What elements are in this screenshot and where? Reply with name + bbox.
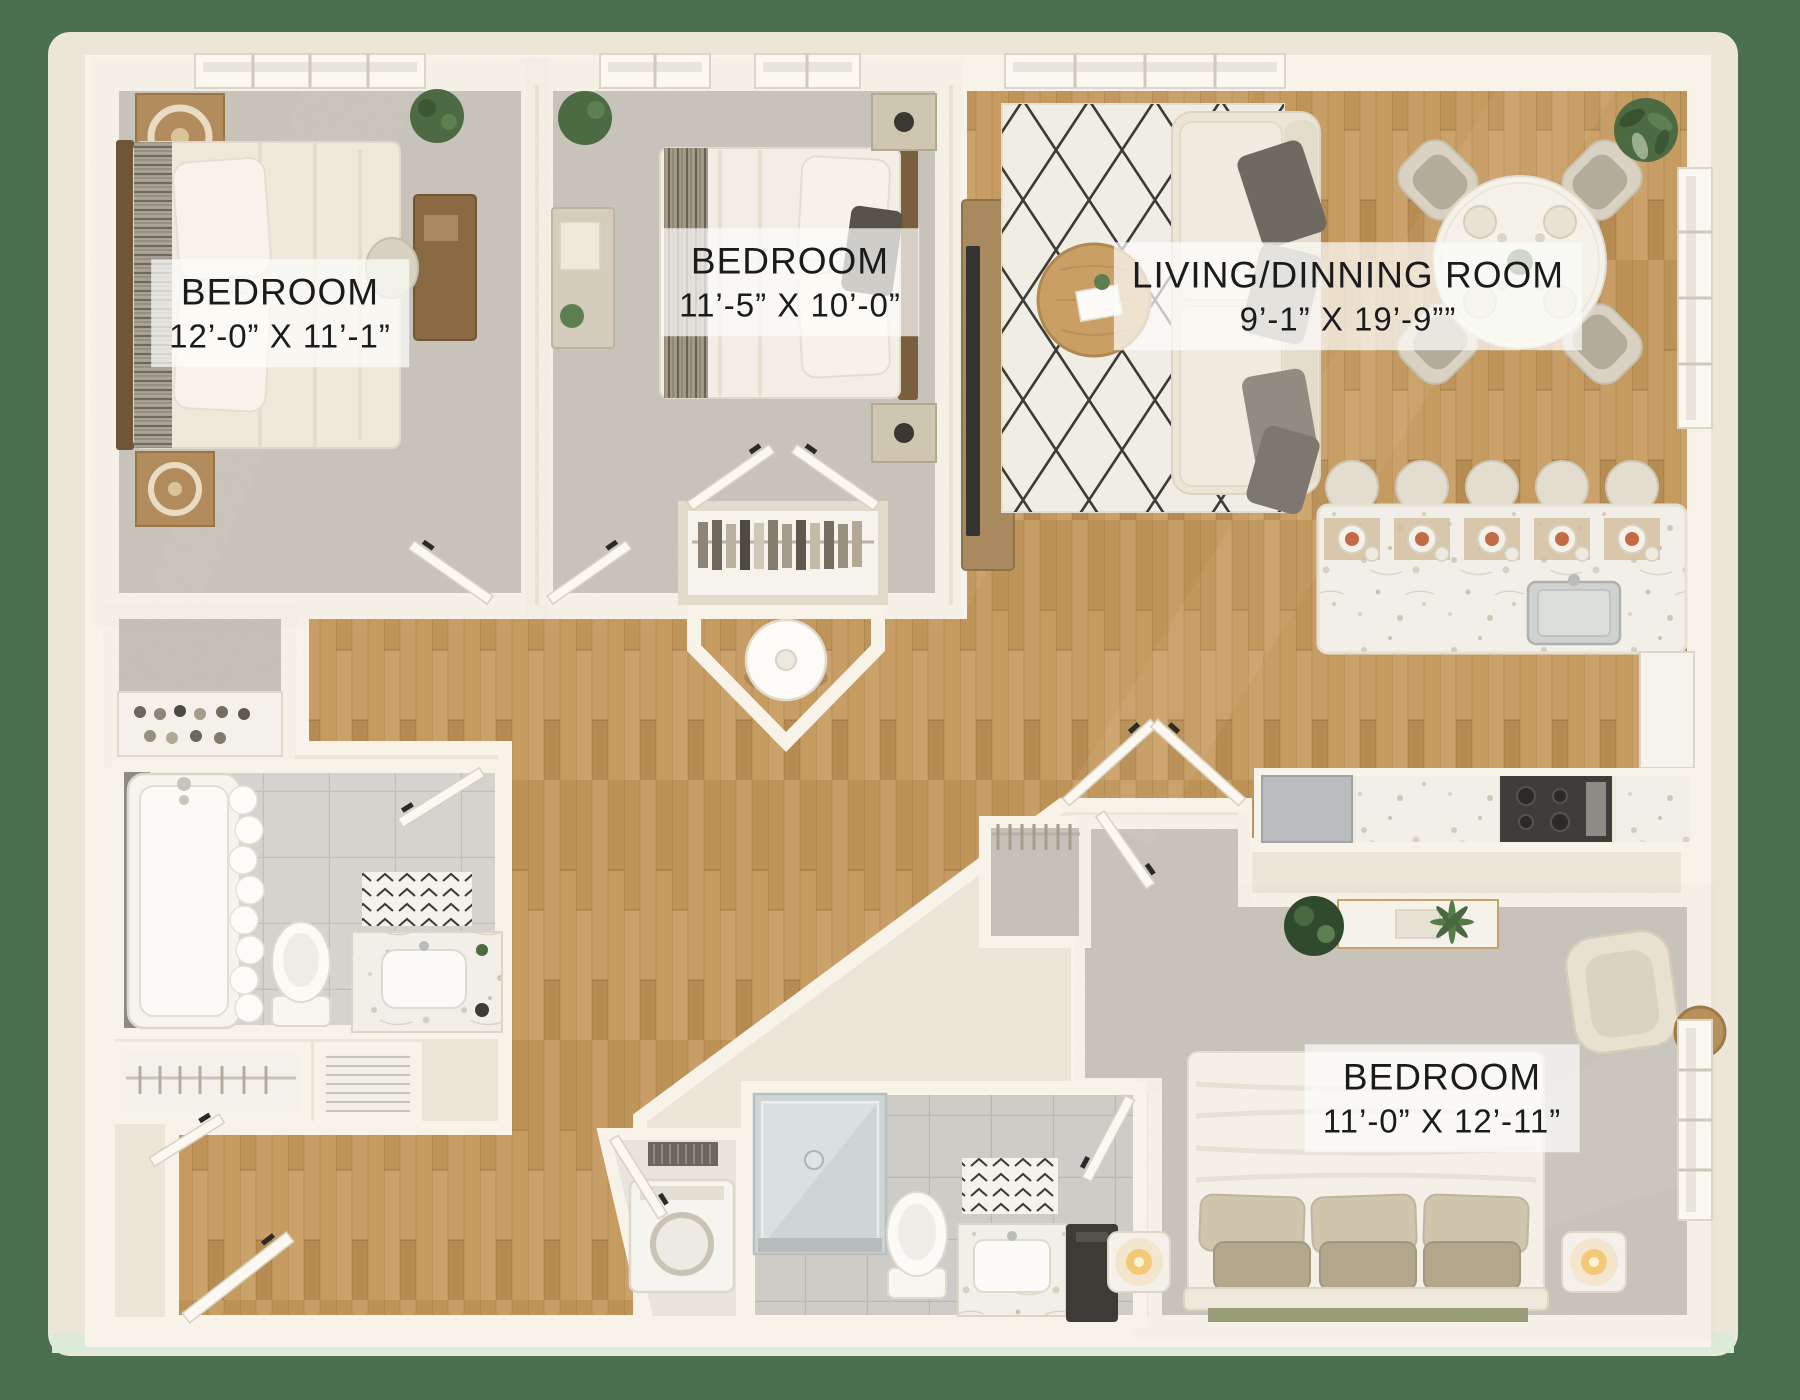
faucet xyxy=(1568,574,1580,586)
headboard xyxy=(116,140,134,450)
countertop xyxy=(1356,776,1498,842)
window xyxy=(1678,168,1712,428)
book xyxy=(560,222,600,270)
room-dimensions: 9’-1” X 19’-9”” xyxy=(1132,299,1564,340)
bed-runner xyxy=(1208,1308,1528,1322)
soap xyxy=(476,944,488,956)
console-table xyxy=(1338,900,1498,948)
lamp-bulb xyxy=(168,482,182,496)
plant-leaves xyxy=(1317,925,1335,943)
window xyxy=(1678,1020,1712,1220)
sink xyxy=(382,950,466,1008)
headboard xyxy=(1184,1288,1548,1310)
kitchen xyxy=(1258,461,1694,846)
plant-leaves xyxy=(1294,906,1314,926)
room-label-bedroom-3: BEDROOM 11’-0” X 12’-11” xyxy=(1305,1044,1580,1152)
room-name: BEDROOM xyxy=(679,238,901,284)
room-dimensions: 12’-0” X 11’-1” xyxy=(169,316,391,357)
fridge xyxy=(1640,652,1694,768)
plate xyxy=(1544,206,1576,238)
shoe-shelf xyxy=(118,692,282,756)
toilet xyxy=(887,1192,947,1298)
plant-leaves xyxy=(418,99,436,117)
shower-drain xyxy=(758,1238,882,1252)
room-name: BEDROOM xyxy=(169,269,391,315)
room-label-living-dining: LIVING/DINNING ROOM 9’-1” X 19’-9”” xyxy=(1114,242,1582,350)
bathtub xyxy=(128,774,240,1028)
floor-plan-canvas xyxy=(0,0,1800,1400)
nightstand-with-lamp xyxy=(1562,1232,1626,1292)
tv xyxy=(966,246,980,536)
corner-plant xyxy=(1614,98,1678,162)
lamp xyxy=(894,423,914,443)
pillow xyxy=(1424,1242,1520,1290)
potted-plant xyxy=(1284,896,1344,956)
lamp xyxy=(894,112,914,132)
entry-closet-1 xyxy=(115,1048,305,1118)
vent-shelf xyxy=(648,1142,718,1166)
window xyxy=(1005,54,1285,88)
bath-mat-pattern xyxy=(962,1158,1058,1214)
water-heater-cap xyxy=(776,650,796,670)
kitchen-counter xyxy=(1258,772,1694,846)
dishwasher xyxy=(1262,776,1352,842)
shower xyxy=(754,1094,886,1254)
plant xyxy=(558,91,612,145)
island-sink xyxy=(1528,574,1620,644)
sink xyxy=(974,1240,1050,1292)
room-name: BEDROOM xyxy=(1323,1054,1562,1100)
plant xyxy=(410,89,464,143)
room-name: LIVING/DINNING ROOM xyxy=(1132,252,1564,298)
shower-handle xyxy=(805,1151,823,1169)
vanity xyxy=(958,1224,1066,1316)
faucet xyxy=(419,941,429,951)
window xyxy=(755,54,860,88)
island-place-settings xyxy=(1324,518,1660,561)
room-dimensions: 11’-0” X 12’-11” xyxy=(1323,1101,1562,1142)
plate xyxy=(1464,206,1496,238)
room-label-bedroom-1: BEDROOM 12’-0” X 11’-1” xyxy=(151,259,409,367)
carpet-texture xyxy=(1082,826,1242,1081)
cabinet-handle xyxy=(1076,1232,1108,1242)
plant-leaves xyxy=(441,114,457,130)
bath-mat-pattern xyxy=(362,872,472,926)
nightstand-with-lamp xyxy=(1108,1232,1170,1292)
desk-item xyxy=(424,215,458,241)
drain xyxy=(179,795,189,805)
tub-faucet xyxy=(177,777,191,791)
small-plant xyxy=(560,304,584,328)
washer-door xyxy=(653,1215,711,1273)
window xyxy=(195,54,425,88)
faucet xyxy=(1007,1231,1017,1241)
pillow xyxy=(1214,1242,1310,1290)
stove xyxy=(1500,776,1612,842)
vanity xyxy=(352,932,502,1032)
plant-leaves xyxy=(587,101,605,119)
pillow xyxy=(1320,1242,1416,1290)
jar xyxy=(475,1003,489,1017)
spiky-plant xyxy=(1430,900,1474,944)
entry-closet-2-wire-shelf xyxy=(320,1048,416,1118)
countertop xyxy=(1616,776,1690,842)
room-label-bedroom-2: BEDROOM 11’-5” X 10’-0” xyxy=(661,228,919,336)
window xyxy=(600,54,710,88)
toilet xyxy=(272,922,330,1026)
foyer-closet xyxy=(118,692,282,756)
armchair xyxy=(1562,927,1681,1056)
table-plant xyxy=(1094,274,1110,290)
room-dimensions: 11’-5” X 10’-0” xyxy=(679,285,901,326)
